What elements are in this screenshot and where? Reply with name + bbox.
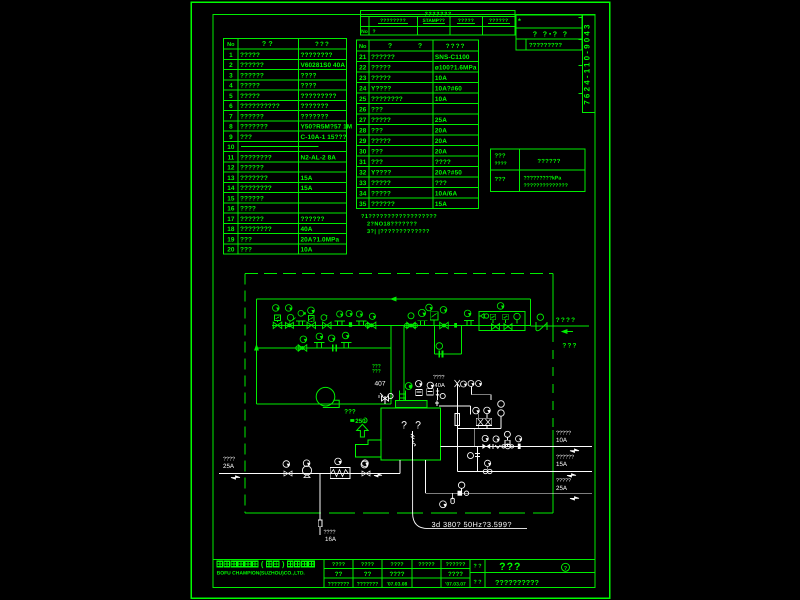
svg-text:?????????: ????????? xyxy=(301,93,337,100)
svg-text:???: ??? xyxy=(371,106,383,113)
svg-text:32: 32 xyxy=(359,169,367,176)
svg-text:????: ???? xyxy=(361,562,374,568)
svg-text:18: 18 xyxy=(227,226,235,233)
svg-text:?: ? xyxy=(553,29,558,38)
svg-text:????????: ???????? xyxy=(301,52,333,59)
svg-text:???: ??? xyxy=(344,408,356,415)
svg-text:10A: 10A xyxy=(301,247,313,254)
svg-text:31: 31 xyxy=(359,159,367,166)
svg-text:40A: 40A xyxy=(435,382,445,389)
svg-text:250: 250 xyxy=(355,418,366,425)
svg-text:?????: ????? xyxy=(371,64,391,71)
svg-text:19: 19 xyxy=(227,236,235,243)
svg-text:15A: 15A xyxy=(301,185,313,192)
svg-text:???????: ??????? xyxy=(301,113,329,120)
svg-text:10A: 10A xyxy=(556,437,568,444)
svg-text:???: ??? xyxy=(495,176,506,183)
svg-text:Y50?R5M?57 1M: Y50?R5M?57 1M xyxy=(301,124,353,131)
svg-text:5: 5 xyxy=(229,93,233,100)
svg-text:7624-110-9043: 7624-110-9043 xyxy=(583,22,592,104)
svg-text:16: 16 xyxy=(227,206,235,213)
svg-text:?????: ????? xyxy=(418,562,434,568)
svg-text:?1??????????????????: ?1?????????????????? xyxy=(361,214,437,220)
svg-text:?: ? xyxy=(533,29,538,38)
svg-text:??: ?? xyxy=(335,571,343,578)
svg-text:????: ???? xyxy=(495,161,507,167)
svg-text:????: ???? xyxy=(448,571,463,578)
svg-text:27: 27 xyxy=(359,117,367,124)
svg-text:????: ???? xyxy=(332,562,345,568)
svg-text:17: 17 xyxy=(227,216,235,223)
svg-text:10: 10 xyxy=(227,144,235,151)
svg-text:14: 14 xyxy=(227,185,235,192)
svg-text:No: No xyxy=(227,42,235,48)
svg-text:?????????kPa: ?????????kPa xyxy=(524,176,562,182)
svg-text:?????: ????? xyxy=(240,93,260,100)
svg-text:4: 4 xyxy=(229,83,233,90)
svg-text:????????: ???????? xyxy=(240,154,272,161)
svg-text:????: ???? xyxy=(446,43,466,50)
svg-text:???: ??? xyxy=(371,159,383,166)
svg-text:20A?1.0MPa: 20A?1.0MPa xyxy=(301,236,340,243)
svg-text:20A: 20A xyxy=(435,127,447,134)
svg-text:21: 21 xyxy=(359,54,367,61)
svg-text:23: 23 xyxy=(359,75,367,82)
svg-text:BOFU CHAMPION(SUZHOU)CO.,LTD.: BOFU CHAMPION(SUZHOU)CO.,LTD. xyxy=(217,570,306,576)
svg-text:????: ???? xyxy=(240,206,256,213)
svg-text:V60281S0 40A: V60281S0 40A xyxy=(301,62,346,69)
svg-text:????: ???? xyxy=(433,375,445,381)
svg-text:Y????: Y???? xyxy=(371,85,391,92)
svg-text:29: 29 xyxy=(359,138,367,145)
svg-text:????????: ???????? xyxy=(240,185,272,192)
svg-text:35: 35 xyxy=(359,201,367,208)
svg-text:16A: 16A xyxy=(325,536,337,543)
svg-text:28: 28 xyxy=(359,127,367,134)
svg-text:?: ? xyxy=(418,43,422,50)
svg-text:????: ???? xyxy=(301,72,317,79)
svg-text:407: 407 xyxy=(375,381,386,388)
svg-text:20A: 20A xyxy=(435,148,447,155)
svg-text:Y????: Y???? xyxy=(371,169,391,176)
svg-text:????: ???? xyxy=(556,317,576,324)
svg-text:???: ??? xyxy=(240,247,252,254)
svg-text:?????: ????? xyxy=(371,138,391,145)
svg-text:????: ???? xyxy=(390,562,403,568)
svg-text:12: 12 xyxy=(227,165,235,172)
svg-text:??????????: ?????????? xyxy=(240,103,280,110)
svg-text:???????: ??????? xyxy=(240,175,268,182)
svg-text:20A?#50: 20A?#50 xyxy=(435,169,462,176)
svg-text:??: ?? xyxy=(262,41,275,48)
svg-text:????????: ???????? xyxy=(240,226,272,233)
svg-text:??????: ?????? xyxy=(371,201,395,208)
svg-text:???: ??? xyxy=(562,343,577,350)
svg-text:?: ? xyxy=(372,29,375,35)
svg-text:15A: 15A xyxy=(301,175,313,182)
svg-text:?: ? xyxy=(543,29,548,38)
svg-text:??: ?? xyxy=(364,571,372,578)
svg-text:11: 11 xyxy=(227,154,234,161)
svg-text:?: ? xyxy=(564,566,568,572)
svg-text:???: ??? xyxy=(499,561,521,573)
svg-text:?????????: ????????? xyxy=(529,42,562,49)
svg-text:?????: ????? xyxy=(556,478,571,484)
svg-text:?????: ????? xyxy=(371,190,391,197)
svg-text:22: 22 xyxy=(359,64,367,71)
svg-text:???: ??? xyxy=(371,148,383,155)
svg-text:2?NO18???????: 2?NO18??????? xyxy=(367,222,417,228)
svg-text:???????: ??????? xyxy=(424,12,451,18)
svg-text:??????: ?????? xyxy=(240,216,264,223)
svg-text:???????: ??????? xyxy=(328,582,349,588)
svg-text:???: ??? xyxy=(495,153,506,160)
svg-text:10A: 10A xyxy=(435,96,447,103)
svg-text:7: 7 xyxy=(229,113,233,120)
svg-text:N2-AL-2 8A: N2-AL-2 8A xyxy=(301,154,337,161)
svg-text:'07.03.07: '07.03.07 xyxy=(445,582,466,588)
svg-text:3d 380? 50Hz?3.599?: 3d 380? 50Hz?3.599? xyxy=(432,520,512,529)
svg-text:???: ??? xyxy=(371,127,383,134)
svg-text:??????: ?????? xyxy=(240,62,264,69)
svg-text:??????: ?????? xyxy=(371,54,395,61)
svg-text:25A: 25A xyxy=(435,117,447,124)
svg-text:???: ??? xyxy=(435,180,447,187)
svg-text:????????: ???????? xyxy=(371,96,403,103)
svg-text:15A: 15A xyxy=(435,201,447,208)
svg-text:????: ???? xyxy=(435,159,451,166)
svg-text:6: 6 xyxy=(229,103,233,110)
svg-text:20: 20 xyxy=(227,247,235,254)
svg-text:15A: 15A xyxy=(556,461,568,468)
svg-text:????: ???? xyxy=(389,571,404,578)
svg-text:3: 3 xyxy=(229,72,233,79)
svg-text:10A?#60: 10A?#60 xyxy=(435,85,462,92)
svg-text:??????: ?????? xyxy=(301,216,325,223)
svg-text:40A: 40A xyxy=(301,226,313,233)
svg-text:33: 33 xyxy=(359,180,367,187)
svg-text:15: 15 xyxy=(227,195,235,202)
svg-text:?????: ????? xyxy=(371,117,391,124)
svg-text:26: 26 xyxy=(359,106,367,113)
svg-text:???: ??? xyxy=(240,236,252,243)
svg-text:???: ??? xyxy=(372,369,381,375)
svg-text:??????: ?????? xyxy=(537,158,560,165)
svg-text:????: ???? xyxy=(223,457,235,463)
svg-text:SNS-C1100: SNS-C1100 xyxy=(435,54,470,61)
svg-text:No: No xyxy=(359,44,367,50)
svg-text:2: 2 xyxy=(229,62,233,69)
svg-text:?: ? xyxy=(388,43,392,50)
svg-text:34: 34 xyxy=(359,190,367,197)
svg-text:??????: ?????? xyxy=(240,72,264,79)
svg-text:????: ???? xyxy=(324,530,336,536)
svg-text:???: ??? xyxy=(240,134,252,141)
svg-text:???: ??? xyxy=(315,41,330,48)
svg-text:??????: ?????? xyxy=(556,455,574,461)
svg-text:????: ???? xyxy=(301,83,317,90)
svg-text:*: * xyxy=(518,17,521,26)
svg-text:10A: 10A xyxy=(435,75,447,82)
svg-text:?????: ????? xyxy=(371,75,391,82)
svg-text:???????: ??????? xyxy=(301,103,329,110)
svg-text:25: 25 xyxy=(359,96,367,103)
svg-text:???????: ??????? xyxy=(240,124,268,131)
svg-text:13: 13 xyxy=(227,175,235,182)
svg-text:8: 8 xyxy=(229,124,233,131)
svg-text:ø100?1.6MPa: ø100?1.6MPa xyxy=(435,64,477,71)
svg-text:???????: ??????? xyxy=(357,582,378,588)
svg-text:??????: ?????? xyxy=(240,113,264,120)
svg-text:?????: ????? xyxy=(240,52,260,59)
svg-text:C-10A-1 15???: C-10A-1 15??? xyxy=(301,134,347,141)
svg-text:?: ? xyxy=(563,29,568,38)
svg-text:25A: 25A xyxy=(556,485,568,492)
svg-text:20A: 20A xyxy=(435,138,447,145)
svg-text:?????: ????? xyxy=(240,83,260,90)
svg-text:9: 9 xyxy=(229,134,233,141)
svg-text:24: 24 xyxy=(359,85,367,92)
svg-text:? ?: ? ? xyxy=(473,580,481,586)
svg-text:3?| |?????????????: 3?| |????????????? xyxy=(367,228,430,235)
svg-text:??????????: ?????????? xyxy=(495,578,539,587)
svg-text:??????: ?????? xyxy=(240,165,264,172)
svg-text:30: 30 xyxy=(359,148,367,155)
svg-text:25A: 25A xyxy=(223,463,235,470)
svg-text:?????: ????? xyxy=(556,431,571,437)
svg-text:??????: ?????? xyxy=(446,562,466,568)
svg-text:??????????????: ?????????????? xyxy=(524,183,568,189)
svg-text:1: 1 xyxy=(229,52,233,59)
svg-text:?: ? xyxy=(415,420,421,432)
svg-text:? ?: ? ? xyxy=(473,564,481,570)
svg-text:??????: ?????? xyxy=(240,195,264,202)
svg-text:10A/6A: 10A/6A xyxy=(435,190,458,197)
svg-text:?????: ????? xyxy=(371,180,391,187)
svg-text:?: ? xyxy=(401,420,407,432)
svg-text:No: No xyxy=(361,29,368,35)
svg-text:'07.03.08: '07.03.08 xyxy=(387,582,408,588)
